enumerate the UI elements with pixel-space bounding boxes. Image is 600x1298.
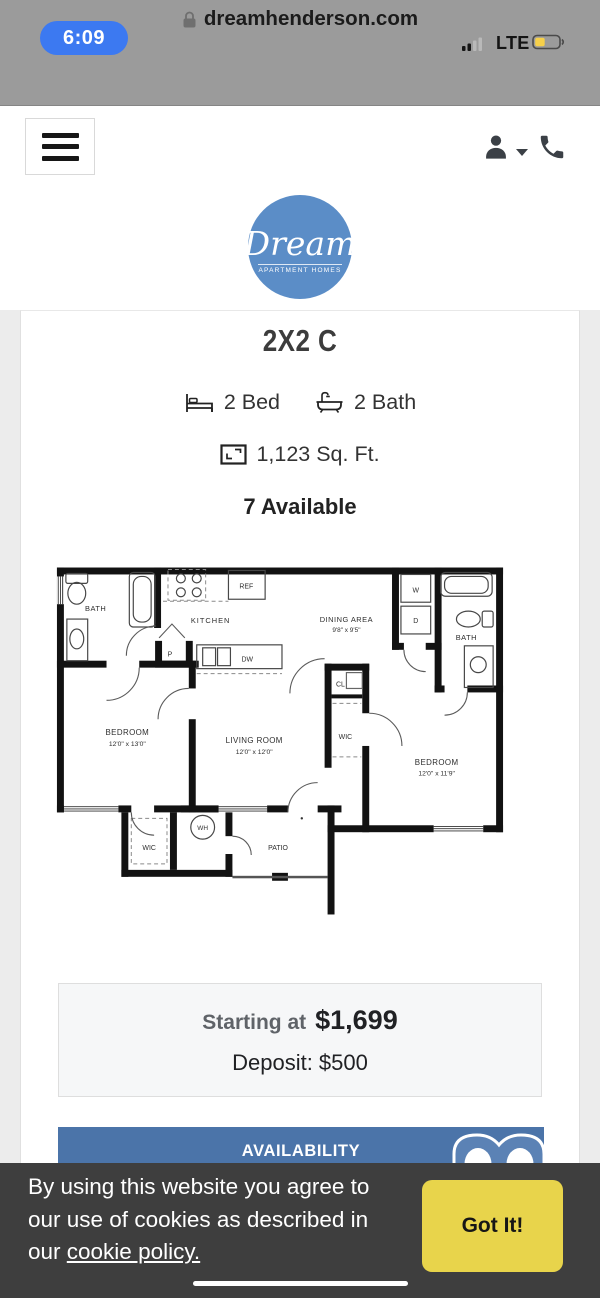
- cookie-message-line2: our use of cookies as described in: [28, 1207, 368, 1232]
- lock-icon: [182, 10, 197, 29]
- status-bar: 6:09 LTE dreamhenderson.com: [0, 0, 600, 106]
- pricing-box: Starting at $1,699 Deposit: $500: [58, 983, 542, 1097]
- fixture-label-water-heater: WH: [197, 825, 208, 832]
- room-label-dining: DINING AREA: [320, 615, 373, 624]
- room-label-bath2: BATH: [456, 633, 477, 642]
- battery-icon: [532, 34, 566, 50]
- floor-plan-title: 2X2 C: [66, 323, 535, 359]
- url-domain: dreamhenderson.com: [204, 7, 418, 31]
- hamburger-bar: [42, 156, 79, 161]
- starting-at-label: Starting at: [202, 1011, 306, 1035]
- room-label-bedroom1: BEDROOM: [105, 728, 149, 737]
- bathtub-icon: [314, 390, 345, 414]
- sqft-label: 1,123 Sq. Ft.: [256, 442, 379, 467]
- room-label-patio: PATIO: [268, 845, 288, 852]
- room-dims-living: 12'0" x 12'0": [236, 749, 274, 756]
- fixture-label-dryer: D: [413, 618, 418, 625]
- units-available: 7 Available: [21, 494, 579, 520]
- iphone-safari-screen: 6:09 LTE dreamhenderson.com: [0, 0, 600, 1298]
- room-label-closet: CL: [336, 681, 345, 688]
- fixture-label-washer: W: [413, 587, 420, 594]
- home-indicator[interactable]: [193, 1281, 408, 1286]
- starting-price-row: Starting at $1,699: [202, 1005, 397, 1036]
- fixture-label-dishwasher: DW: [242, 657, 254, 664]
- room-label-bath1: BATH: [85, 604, 106, 613]
- cookie-message: By using this website you agree to our u…: [28, 1171, 428, 1269]
- time-pill: 6:09: [40, 21, 128, 55]
- square-feet-icon: [220, 444, 247, 465]
- logo-name: Dream: [244, 227, 357, 260]
- sqft-feature: 1,123 Sq. Ft.: [220, 442, 379, 467]
- chevron-down-icon[interactable]: [515, 148, 529, 157]
- sqft-row: 1,123 Sq. Ft.: [21, 437, 579, 471]
- network-type-label: LTE: [496, 33, 530, 54]
- cookie-policy-link[interactable]: cookie policy.: [67, 1239, 200, 1264]
- got-it-button[interactable]: Got It!: [422, 1180, 563, 1272]
- hamburger-bar: [42, 133, 79, 138]
- room-label-wic2: WIC: [339, 734, 352, 741]
- baths-label: 2 Bath: [354, 390, 416, 415]
- signal-strength-icon: [462, 36, 484, 52]
- hamburger-bar: [42, 144, 79, 149]
- bed-bath-row: 2 Bed 2 Bath: [21, 385, 579, 419]
- hamburger-menu-button[interactable]: [25, 118, 95, 175]
- floor-plan-image: BATH KITCHEN DINING AREA 9'8" x 9'5" REF…: [52, 561, 508, 921]
- cookie-message-line1: By using this website you agree to: [28, 1174, 369, 1199]
- account-icon[interactable]: [482, 133, 510, 161]
- room-dims-bedroom1: 12'0" x 13'0": [109, 741, 147, 748]
- cookie-message-line3: our: [28, 1239, 67, 1264]
- beds-label: 2 Bed: [224, 390, 280, 415]
- fixture-label-ref: REF: [239, 583, 253, 590]
- baths-feature: 2 Bath: [314, 390, 416, 415]
- dream-apartment-homes-logo[interactable]: Dream APARTMENT HOMES: [248, 195, 352, 299]
- phone-icon[interactable]: [537, 132, 567, 162]
- bed-icon: [184, 391, 215, 414]
- site-header: Dream APARTMENT HOMES: [0, 106, 600, 310]
- logo-subtitle: APARTMENT HOMES: [258, 264, 341, 274]
- room-label-kitchen: KITCHEN: [191, 616, 231, 625]
- room-label-bedroom2: BEDROOM: [415, 758, 459, 767]
- room-dims-dining: 9'8" x 9'5": [332, 627, 361, 634]
- starting-price: $1,699: [315, 1005, 398, 1036]
- fixture-label-pantry: P: [168, 652, 173, 659]
- status-time: 6:09: [63, 27, 105, 50]
- deposit-amount: Deposit: $500: [232, 1050, 368, 1076]
- room-label-wic1: WIC: [142, 845, 155, 852]
- beds-feature: 2 Bed: [184, 390, 280, 415]
- room-label-living: LIVING ROOM: [226, 736, 283, 745]
- room-dims-bedroom2: 12'0" x 11'9": [418, 771, 455, 778]
- cookie-consent-banner: By using this website you agree to our u…: [0, 1163, 600, 1298]
